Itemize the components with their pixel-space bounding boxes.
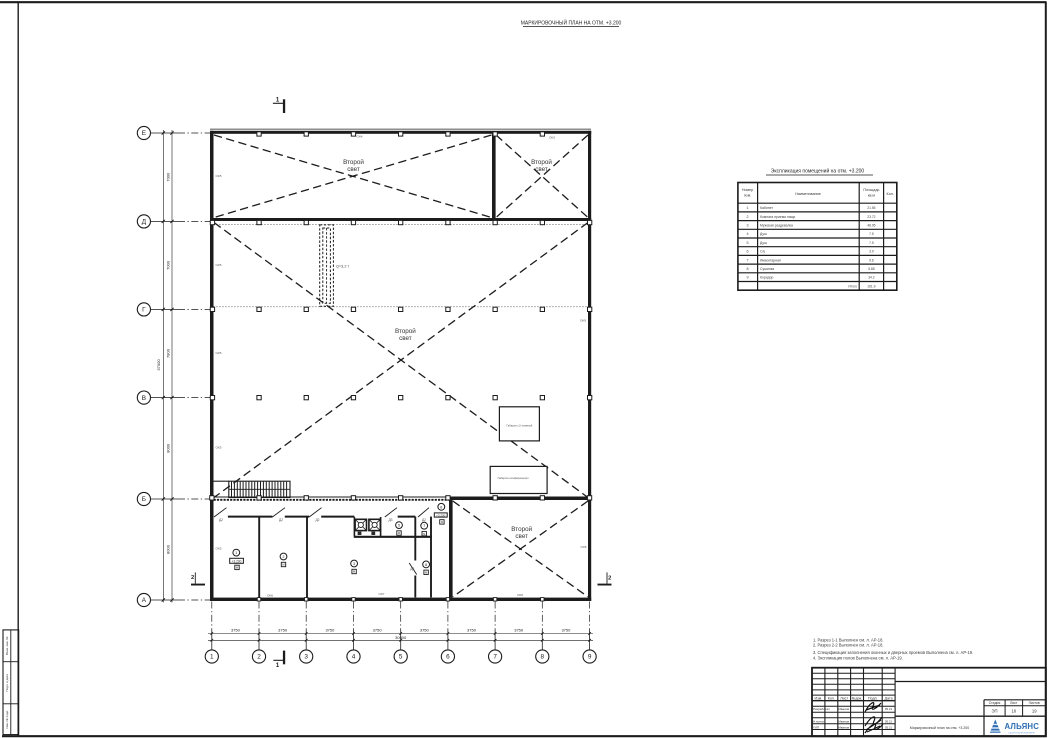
svg-text:21.55: 21.55: [867, 206, 875, 210]
svg-text:5.88: 5.88: [868, 267, 875, 271]
svg-text:4: 4: [352, 654, 356, 661]
svg-text:свет: свет: [399, 335, 412, 342]
svg-text:Второй: Второй: [531, 158, 552, 166]
svg-text:2: 2: [283, 555, 285, 559]
svg-text:3750: 3750: [373, 627, 383, 632]
svg-text:19: 19: [1032, 709, 1037, 714]
svg-text:Габариты 2-этажный: Габариты 2-этажный: [507, 424, 533, 428]
svg-text:5: 5: [746, 241, 748, 245]
svg-text:А: А: [142, 597, 147, 604]
svg-text:5: 5: [398, 524, 400, 528]
svg-text:Маркировочный план на отм. +3.: Маркировочный план на отм. +3.200: [910, 726, 969, 730]
svg-text:30000: 30000: [395, 635, 407, 640]
svg-text:Подп.: Подп.: [868, 697, 878, 701]
svg-text:Д2: Д2: [279, 518, 283, 522]
svg-text:Лист: Лист: [1010, 701, 1018, 705]
svg-text:05.21: 05.21: [885, 720, 893, 724]
svg-text:ОК5: ОК5: [216, 174, 222, 178]
svg-text:Разработал: Разработал: [813, 707, 830, 711]
svg-text:161.9: 161.9: [867, 284, 875, 288]
svg-text:свет: свет: [347, 166, 360, 173]
svg-text:1: 1: [276, 663, 280, 669]
svg-text:Мужская раздевалка: Мужская раздевалка: [760, 224, 793, 228]
svg-text:ОК6: ОК6: [581, 545, 587, 549]
svg-text:Второй: Второй: [395, 327, 416, 335]
svg-text:Коридор: Коридор: [760, 276, 774, 280]
svg-text:3750: 3750: [467, 627, 477, 632]
svg-text:6: 6: [746, 250, 748, 254]
svg-text:2: 2: [746, 215, 748, 219]
svg-text:8: 8: [541, 654, 545, 661]
svg-text:С/у: С/у: [760, 250, 765, 254]
svg-text:8000: 8000: [166, 443, 171, 453]
svg-text:16: 16: [1011, 709, 1016, 714]
svg-text:05.21: 05.21: [885, 726, 893, 730]
svg-text:ОК5: ОК5: [216, 263, 222, 267]
svg-text:Дата: Дата: [885, 697, 893, 701]
svg-text:3: 3: [304, 654, 308, 661]
svg-text:1: 1: [210, 654, 214, 661]
svg-text:Экспликация помещений на отм.: Экспликация помещений на отм. +3.200: [771, 168, 865, 175]
svg-text:ОК3: ОК3: [549, 135, 555, 139]
svg-text:Д2: Д2: [422, 518, 426, 522]
svg-text:7800: 7800: [166, 348, 171, 358]
svg-text:кв.м: кв.м: [868, 194, 876, 198]
svg-text:7.5: 7.5: [869, 241, 874, 245]
svg-text:1: 1: [276, 97, 280, 103]
svg-text:М: М: [236, 566, 238, 570]
svg-text:Листов: Листов: [1029, 701, 1040, 705]
svg-text:М: М: [282, 563, 284, 567]
svg-text:3. Спецификация заполнения око: 3. Спецификация заполнения оконных и две…: [813, 650, 973, 655]
svg-text:ОК6: ОК6: [267, 594, 273, 598]
svg-text:48.05: 48.05: [867, 224, 875, 228]
svg-text:5: 5: [399, 654, 403, 661]
svg-text:В: В: [142, 395, 146, 402]
svg-text:пом.: пом.: [744, 194, 752, 198]
svg-text:05.21: 05.21: [885, 707, 893, 711]
svg-text:М: М: [423, 532, 425, 536]
svg-text:Взам. инв. №: Взам. инв. №: [5, 636, 9, 655]
svg-text:3750: 3750: [420, 627, 430, 632]
svg-text:М: М: [441, 520, 443, 524]
svg-text:34.2: 34.2: [868, 276, 875, 280]
svg-text:2: 2: [608, 575, 611, 581]
svg-text:Сушилка: Сушилка: [760, 267, 774, 271]
svg-text:ОК5: ОК5: [216, 446, 222, 450]
svg-text:Иванов: Иванов: [839, 720, 850, 724]
svg-text:Е: Е: [142, 130, 146, 137]
svg-text:Душ: Душ: [760, 232, 767, 236]
svg-text:2: 2: [257, 654, 261, 661]
svg-text:ОК9: ОК9: [580, 319, 586, 323]
svg-text:Д2: Д2: [315, 518, 319, 522]
svg-text:7: 7: [423, 524, 425, 528]
svg-text:2. Разрез 2-2 Выполнен см. л.: 2. Разрез 2-2 Выполнен см. л. АР-18.: [813, 643, 884, 648]
svg-text:Инвентарная: Инвентарная: [760, 258, 781, 262]
svg-text:Итого: Итого: [848, 284, 857, 288]
svg-text:8000: 8000: [166, 544, 171, 554]
svg-text:Подп. и дата: Подп. и дата: [5, 674, 9, 692]
svg-text:3750: 3750: [561, 627, 571, 632]
svg-text:Д: Д: [142, 219, 147, 226]
svg-text:7000: 7000: [166, 260, 171, 270]
svg-text:3: 3: [353, 562, 355, 566]
svg-text:Кол.: Кол.: [828, 697, 835, 701]
svg-text:АЛЬЯНС: АЛЬЯНС: [1005, 722, 1040, 731]
svg-text:строительная компания: строительная компания: [1008, 731, 1035, 734]
svg-text:3750: 3750: [325, 627, 335, 632]
svg-text:МАРКИРОВОЧНЫЙ ПЛАН НА ОТМ. +3.: МАРКИРОВОЧНЫЙ ПЛАН НА ОТМ. +3.200: [521, 18, 622, 26]
svg-text:Д3: Д3: [410, 567, 414, 571]
svg-text:1: 1: [235, 551, 237, 555]
svg-text:Номер: Номер: [742, 188, 753, 192]
svg-text:8: 8: [425, 563, 427, 567]
svg-text:свет: свет: [535, 166, 548, 173]
svg-text:ОК7: ОК7: [379, 592, 385, 596]
svg-text:7: 7: [493, 654, 497, 661]
svg-text:М: М: [398, 531, 400, 535]
svg-text:3750: 3750: [231, 627, 241, 632]
svg-text:+3.200: +3.200: [436, 513, 446, 517]
svg-text:М: М: [353, 570, 355, 574]
svg-text:Д2: Д2: [219, 518, 223, 522]
svg-text:Площадь: Площадь: [863, 188, 879, 192]
svg-text:37000: 37000: [156, 359, 161, 371]
svg-text:ОК5: ОК5: [216, 547, 222, 551]
svg-text:Душ: Душ: [760, 241, 767, 245]
svg-text:ГИП: ГИП: [813, 726, 819, 730]
svg-text:9: 9: [588, 654, 592, 661]
svg-text:8: 8: [746, 267, 748, 271]
svg-text:6: 6: [440, 505, 442, 509]
svg-text:+3.200: +3.200: [232, 559, 242, 563]
svg-text:Инв. № подл.: Инв. № подл.: [5, 710, 9, 729]
svg-text:свет: свет: [515, 533, 528, 540]
svg-text:Второй: Второй: [343, 158, 364, 166]
svg-text:М: М: [425, 571, 427, 575]
svg-text:3750: 3750: [514, 627, 524, 632]
svg-text:ЭП: ЭП: [991, 709, 997, 714]
svg-text:Q=3,2 т: Q=3,2 т: [336, 265, 350, 269]
svg-text:3750: 3750: [278, 627, 288, 632]
svg-text:Н.контр.: Н.контр.: [813, 720, 825, 724]
svg-text:Кол.: Кол.: [887, 192, 894, 196]
svg-text:ОК8: ОК8: [517, 593, 523, 597]
svg-text:Иванов: Иванов: [839, 707, 850, 711]
svg-text:№док.: №док.: [852, 697, 863, 701]
svg-text:Иванов: Иванов: [839, 726, 850, 730]
svg-text:Комната приема пищи: Комната приема пищи: [760, 215, 795, 219]
svg-text:Второй: Второй: [511, 525, 532, 533]
svg-text:Лист: Лист: [840, 697, 848, 701]
svg-text:3: 3: [746, 224, 748, 228]
svg-text:7: 7: [746, 258, 748, 262]
svg-text:23.72: 23.72: [867, 215, 875, 219]
svg-text:3.9: 3.9: [869, 250, 874, 254]
svg-text:Стадия: Стадия: [989, 701, 1001, 705]
svg-text:9.6: 9.6: [869, 258, 874, 262]
svg-text:Изм.: Изм.: [815, 697, 823, 701]
svg-text:2: 2: [191, 575, 194, 581]
svg-text:Д3: Д3: [388, 518, 392, 522]
svg-text:Кабинет: Кабинет: [760, 206, 773, 210]
svg-text:Наименование: Наименование: [795, 192, 821, 196]
svg-text:Г: Г: [142, 307, 146, 314]
svg-text:7000: 7000: [166, 172, 171, 182]
svg-text:ОК4: ОК4: [357, 135, 363, 139]
svg-text:1: 1: [746, 206, 748, 210]
svg-text:4: 4: [746, 232, 748, 236]
svg-text:4. Экспликация полов Выполнена: 4. Экспликация полов Выполнена см. л. АР…: [813, 656, 903, 661]
svg-text:Габариты конференцзал: Габариты конференцзал: [498, 476, 529, 480]
svg-text:9: 9: [746, 276, 748, 280]
svg-text:Б: Б: [142, 496, 146, 503]
svg-text:6: 6: [446, 654, 450, 661]
svg-text:7.5: 7.5: [869, 232, 874, 236]
svg-text:ОК5: ОК5: [216, 351, 222, 355]
